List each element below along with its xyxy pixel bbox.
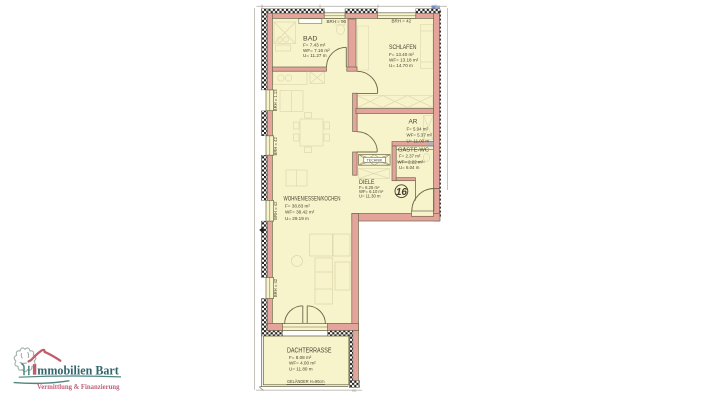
- svg-text:BRH = 1.13: BRH = 1.13: [273, 89, 278, 111]
- svg-text:WF= 38.42 m²: WF= 38.42 m²: [285, 210, 315, 215]
- svg-text:F= 8.08 m²: F= 8.08 m²: [289, 355, 312, 360]
- svg-text:U= 6.04 m: U= 6.04 m: [399, 165, 420, 170]
- svg-text:SCHLAFEN: SCHLAFEN: [389, 44, 417, 51]
- svg-text:F= 5.94 m²: F= 5.94 m²: [407, 127, 429, 132]
- svg-text:WOHNEN/ESSEN/KOCHEN: WOHNEN/ESSEN/KOCHEN: [284, 196, 341, 203]
- svg-text:Vermittlung & Finanzierung: Vermittlung & Finanzierung: [37, 382, 120, 391]
- svg-text:TECHNIK: TECHNIK: [367, 159, 383, 163]
- svg-text:U= 11.27 m: U= 11.27 m: [303, 53, 327, 58]
- svg-text:GÄSTE-WC: GÄSTE-WC: [398, 147, 429, 154]
- svg-text:U= 11.30 m: U= 11.30 m: [359, 194, 381, 199]
- svg-text:WF= 4.00 m²: WF= 4.00 m²: [289, 361, 316, 366]
- svg-text:mmobilien Bart: mmobilien Bart: [37, 363, 119, 378]
- svg-text:WF= 13.18 m²: WF= 13.18 m²: [389, 57, 419, 62]
- svg-text:ca.: ca.: [352, 389, 357, 393]
- svg-text:WF= 5.37 m²: WF= 5.37 m²: [407, 132, 433, 137]
- svg-text:U= 11.00 m: U= 11.00 m: [407, 138, 430, 143]
- svg-text:U= 29.19 m: U= 29.19 m: [285, 216, 309, 221]
- svg-text:BRH = 42: BRH = 42: [392, 19, 412, 24]
- svg-text:BRH = 42: BRH = 42: [273, 201, 278, 220]
- svg-text:BRH = 42: BRH = 42: [273, 136, 278, 155]
- svg-text:DACHTERRASSE: DACHTERRASSE: [287, 348, 332, 355]
- svg-text:U= 14.70 m: U= 14.70 m: [389, 63, 413, 68]
- svg-text:AR: AR: [409, 119, 418, 126]
- svg-text:BRH = 90: BRH = 90: [327, 19, 347, 24]
- svg-text:16: 16: [396, 187, 408, 198]
- svg-text:U= 11.80 m: U= 11.80 m: [289, 367, 313, 372]
- svg-text:BRH = 42: BRH = 42: [273, 278, 278, 297]
- svg-text:F= 38.83 m²: F= 38.83 m²: [285, 204, 310, 209]
- svg-text:F= 2.37 m²: F= 2.37 m²: [399, 154, 421, 159]
- svg-text:F= 13.40 m²: F= 13.40 m²: [389, 52, 414, 57]
